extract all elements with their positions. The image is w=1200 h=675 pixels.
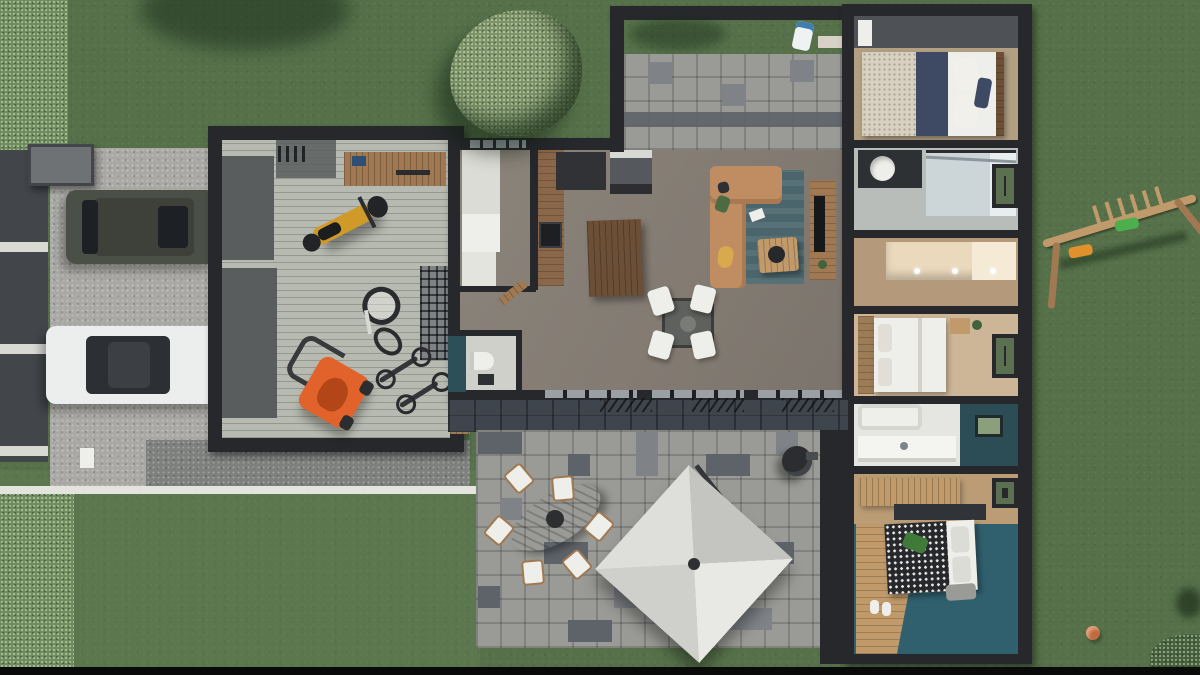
workbench	[344, 152, 446, 186]
wing-wall	[854, 466, 1018, 474]
wardrobe-knob	[952, 268, 958, 274]
bedroom1-bed	[862, 52, 1004, 136]
garden-chair	[521, 559, 545, 586]
bathroom1-window	[992, 164, 1018, 208]
round-basin	[870, 156, 895, 181]
paver-tile	[722, 84, 746, 106]
swing-leg	[1048, 242, 1061, 308]
bedroom2-bed	[874, 318, 946, 392]
bathtub	[858, 404, 922, 430]
blind-shadow	[692, 398, 744, 412]
nightstand	[950, 318, 970, 334]
nightstand-plant	[972, 320, 982, 330]
utility-partition-wall	[530, 150, 538, 290]
render-edge-bar	[0, 667, 1200, 675]
paver-tile	[500, 498, 522, 520]
wood-desk	[860, 478, 960, 506]
bathroom2-accent-wall	[960, 404, 1018, 466]
curb	[0, 486, 480, 494]
bed-pillow	[952, 56, 980, 91]
paver-tile	[478, 586, 500, 608]
kitchen-island	[587, 219, 644, 297]
north-porch	[854, 16, 1018, 48]
dark-desk	[894, 504, 986, 520]
parasol-hub	[688, 558, 700, 570]
garden-chair	[551, 475, 575, 502]
paver-tile	[790, 60, 814, 82]
houndstooth-blanket	[884, 521, 950, 594]
sliding-door	[652, 390, 744, 398]
coffee-table-tray	[768, 246, 785, 263]
aerial-floorplan-scene	[0, 0, 1200, 675]
bed-bench	[945, 583, 976, 601]
wardrobe-knob	[990, 268, 996, 274]
bed-pillow	[878, 324, 892, 352]
bed-runner-navy	[916, 52, 948, 136]
wall-ladder-icon	[278, 146, 310, 162]
doormat-package	[80, 448, 94, 468]
tv	[814, 196, 825, 252]
corner-bush-shadow	[1176, 588, 1200, 618]
pergola-tree-shadow	[630, 18, 726, 50]
bbq-grill	[782, 446, 812, 476]
doormat	[818, 36, 844, 48]
console-plant	[818, 260, 827, 269]
orange-ball	[1086, 626, 1100, 640]
wardrobe-knob	[914, 268, 920, 274]
slippers	[870, 600, 879, 614]
sliding-door	[758, 390, 844, 398]
garage-floor-mat	[222, 156, 274, 260]
sliding-door	[545, 390, 637, 398]
paver-tile	[706, 454, 750, 476]
paver-tile	[568, 454, 590, 476]
bathroom2-vanity	[858, 436, 956, 462]
cream-wardrobe	[886, 242, 1016, 280]
kitchen-back-counter	[556, 152, 606, 190]
bed-pillow	[952, 556, 971, 583]
bathroom2-art	[978, 418, 1000, 434]
sedan-roof	[108, 342, 150, 388]
wc-accent-wall	[448, 336, 466, 392]
office-window	[992, 478, 1018, 508]
bed-fold	[918, 318, 922, 392]
suv-sunroof	[158, 206, 188, 248]
window	[470, 140, 526, 148]
hedge	[0, 492, 74, 675]
table-centerpiece	[546, 510, 564, 528]
pergola-beam	[610, 6, 858, 20]
wc-sink	[478, 374, 494, 385]
faucet	[900, 442, 908, 450]
wing-wall	[854, 230, 1018, 238]
paver-tile	[648, 62, 672, 84]
bbq-side-shelf	[806, 452, 818, 460]
master-west-garden-wall	[820, 430, 854, 664]
pergola-paver-dark-row	[624, 112, 846, 127]
paver-tile	[568, 620, 612, 642]
dining-table-leg	[680, 316, 696, 332]
suv-car	[66, 190, 216, 264]
washer-dryer-stack	[462, 150, 500, 252]
suv-windshield	[82, 200, 98, 254]
white-sedan	[46, 326, 218, 404]
garden-shed	[28, 144, 94, 186]
porch-door	[858, 20, 872, 46]
wing-wall	[854, 306, 1018, 314]
tools	[396, 170, 430, 175]
bed-pillow	[878, 358, 892, 386]
bed-pillow	[950, 526, 969, 553]
bedroom2-headboard-wall	[858, 316, 874, 394]
toolbox	[352, 156, 366, 166]
bedroom2-window	[992, 334, 1018, 378]
paver-tile	[636, 432, 658, 476]
blind-shadow	[600, 398, 652, 412]
toilet	[470, 352, 494, 370]
paver-tile	[478, 432, 522, 454]
bed-blanket-beige	[862, 52, 918, 136]
headboard	[996, 52, 1004, 136]
cooktop	[539, 222, 562, 248]
pergola-wall	[610, 6, 624, 152]
wing-wall	[854, 396, 1018, 404]
tall-appliance	[610, 150, 652, 194]
hedge	[0, 0, 68, 150]
wing-wall	[854, 140, 1018, 148]
storage-rack	[420, 266, 448, 360]
sedan-mirror	[166, 328, 176, 334]
wc-walls	[516, 330, 522, 392]
blind-shadow	[782, 398, 834, 412]
boundary-fence	[0, 150, 48, 462]
